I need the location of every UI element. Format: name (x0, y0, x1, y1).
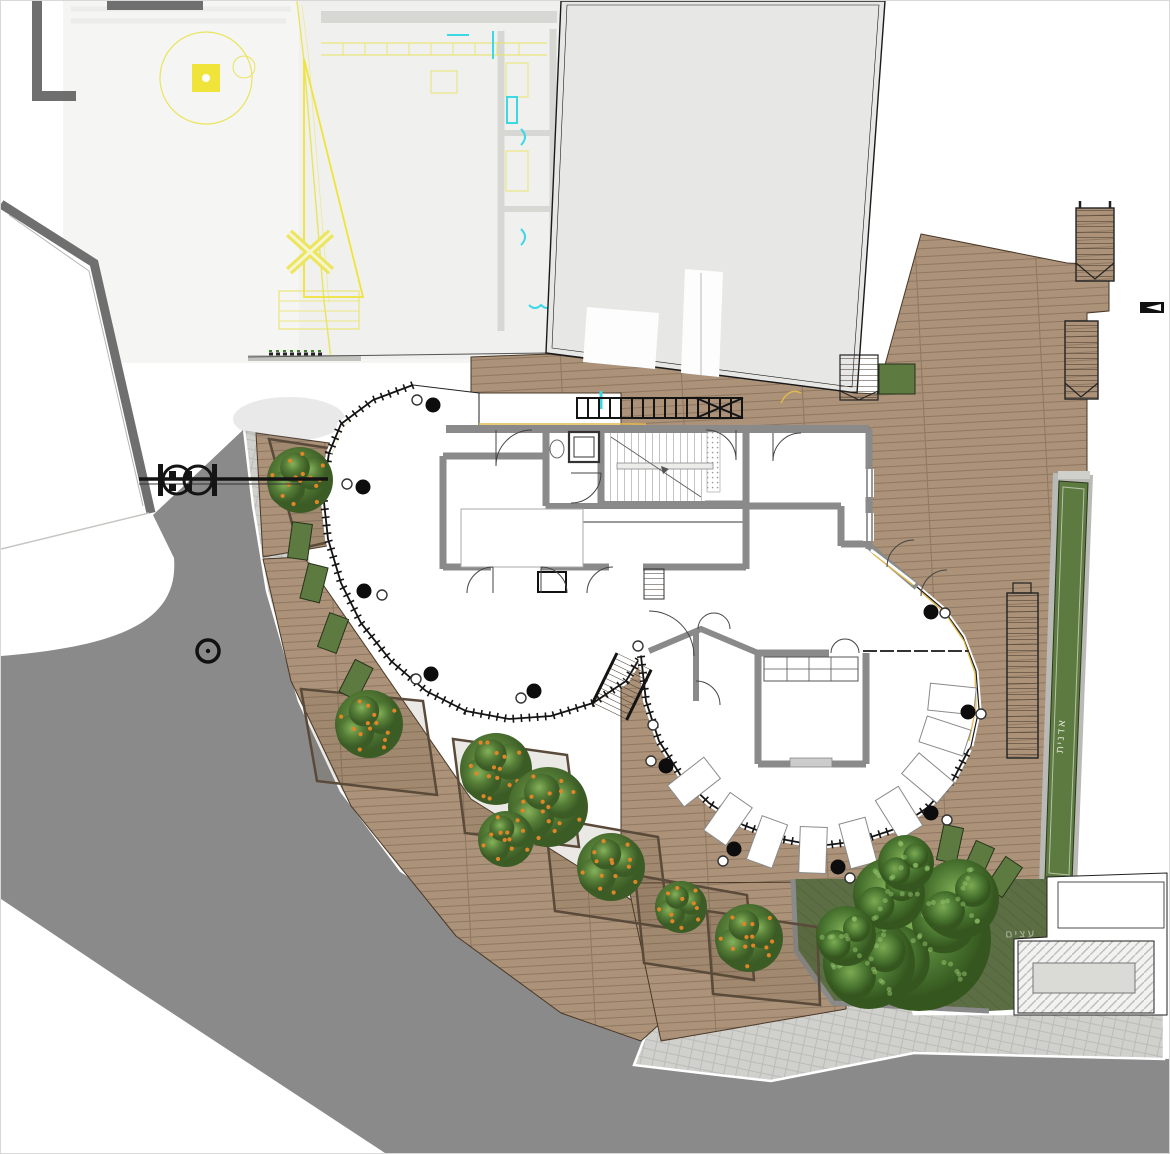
column (924, 806, 939, 821)
column (357, 584, 372, 599)
column (831, 860, 846, 875)
column-marker (342, 479, 352, 489)
sunbed (799, 827, 828, 874)
site-plan-canvas: אדנית עצים (0, 0, 1170, 1154)
column (924, 605, 939, 620)
room-rug (461, 509, 583, 567)
orange-tree (335, 690, 403, 758)
column-marker (718, 856, 728, 866)
small-stair (644, 569, 664, 599)
stair-near-building (840, 355, 878, 400)
orange-tree (715, 904, 783, 972)
roof-slab (546, 1, 885, 393)
column (961, 705, 976, 720)
cad-underlay (63, 1, 563, 363)
long-deck-stair (1007, 583, 1038, 758)
planter-box (288, 522, 313, 560)
column-marker (412, 395, 422, 405)
stair-right-edge (1065, 321, 1098, 399)
shaft-box (538, 572, 566, 592)
tree-shadow (233, 397, 345, 441)
column-marker (648, 720, 658, 730)
bench-table (1033, 963, 1135, 993)
orange-tree (478, 811, 534, 867)
column (424, 667, 439, 682)
column-marker (377, 590, 387, 600)
column-marker (845, 873, 855, 883)
column (426, 398, 441, 413)
court-upper-slab (1058, 882, 1164, 928)
column (659, 759, 674, 774)
column-marker (516, 693, 526, 703)
column-marker (646, 756, 656, 766)
section-marker (1140, 302, 1164, 313)
column-marker (976, 709, 986, 719)
column-marker (940, 608, 950, 618)
lawn-tree-canopy (878, 835, 934, 891)
orange-tree (655, 881, 707, 933)
lawn-tree-canopy (816, 906, 876, 966)
manhole-cover (197, 640, 219, 662)
column (527, 684, 542, 699)
site-plan-svg: אדנית עצים (1, 1, 1170, 1154)
column (356, 480, 371, 495)
column-marker (411, 674, 421, 684)
column-marker (942, 815, 952, 825)
column (727, 842, 742, 857)
orange-tree (577, 833, 645, 901)
green-deck-inset (879, 364, 915, 394)
column-marker (633, 641, 643, 651)
stair-top-right (1076, 201, 1114, 281)
planter-strip-label: אדנית (1053, 718, 1068, 754)
